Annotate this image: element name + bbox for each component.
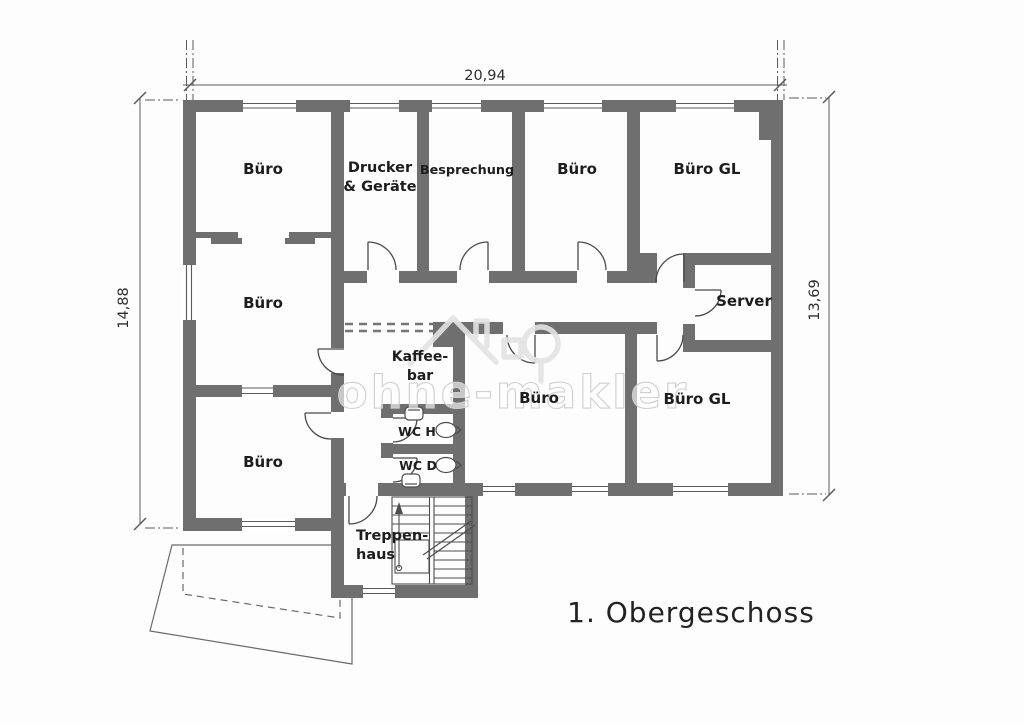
door-drucker xyxy=(368,242,396,270)
open-passage-dashed xyxy=(345,324,433,331)
dimension-right-value: 13,69 xyxy=(807,279,823,321)
room-label-buero-gl-top: Büro GL xyxy=(674,160,741,178)
door-buero-top xyxy=(578,242,606,270)
room-label-kaffeebar-line1: Kaffee- xyxy=(392,349,449,365)
room-label-besprechung: Besprechung xyxy=(420,163,514,178)
room-label-kaffeebar-line2: bar xyxy=(407,368,433,384)
door-buero-bottom-left xyxy=(305,413,331,439)
floor-plan: ohne-makler Büro Drucker & Geräte Bespre… xyxy=(0,0,1024,724)
door-buero-gl-top xyxy=(656,254,684,282)
room-label-wc-d: WC D xyxy=(399,458,437,473)
room-label-buero-middle: Büro xyxy=(519,389,559,407)
room-label-buero-middle-left: Büro xyxy=(243,294,283,312)
page-title: 1. Obergeschoss xyxy=(567,596,815,629)
door-treppenhaus xyxy=(349,496,377,524)
room-label-drucker-line1: Drucker xyxy=(348,160,413,176)
door-besprechung xyxy=(460,242,488,270)
floor-plan-page: ohne-makler Büro Drucker & Geräte Bespre… xyxy=(0,0,1024,724)
dimension-top-value: 20,94 xyxy=(464,68,506,84)
room-label-buero-top-middle: Büro xyxy=(557,160,597,178)
room-label-buero-gl-lower: Büro GL xyxy=(664,390,731,408)
lower-floor-outline xyxy=(150,545,352,664)
room-label-treppenhaus-line2: haus xyxy=(356,547,395,563)
room-label-drucker-line2: & Geräte xyxy=(343,179,416,195)
room-label-server: Server xyxy=(716,292,772,310)
watermark-text: ohne-makler xyxy=(337,366,690,419)
room-label-treppenhaus-line1: Treppen- xyxy=(356,528,428,544)
room-label-buero-bottom-left: Büro xyxy=(243,453,283,471)
toilet-icon xyxy=(402,474,420,487)
room-label-buero-top-left: Büro xyxy=(243,160,283,178)
dimension-left-value: 14,88 xyxy=(116,287,132,329)
room-label-wc-h: WC H xyxy=(398,424,436,439)
door-buero-gl-lower xyxy=(657,335,683,361)
dimension-left xyxy=(134,92,180,530)
